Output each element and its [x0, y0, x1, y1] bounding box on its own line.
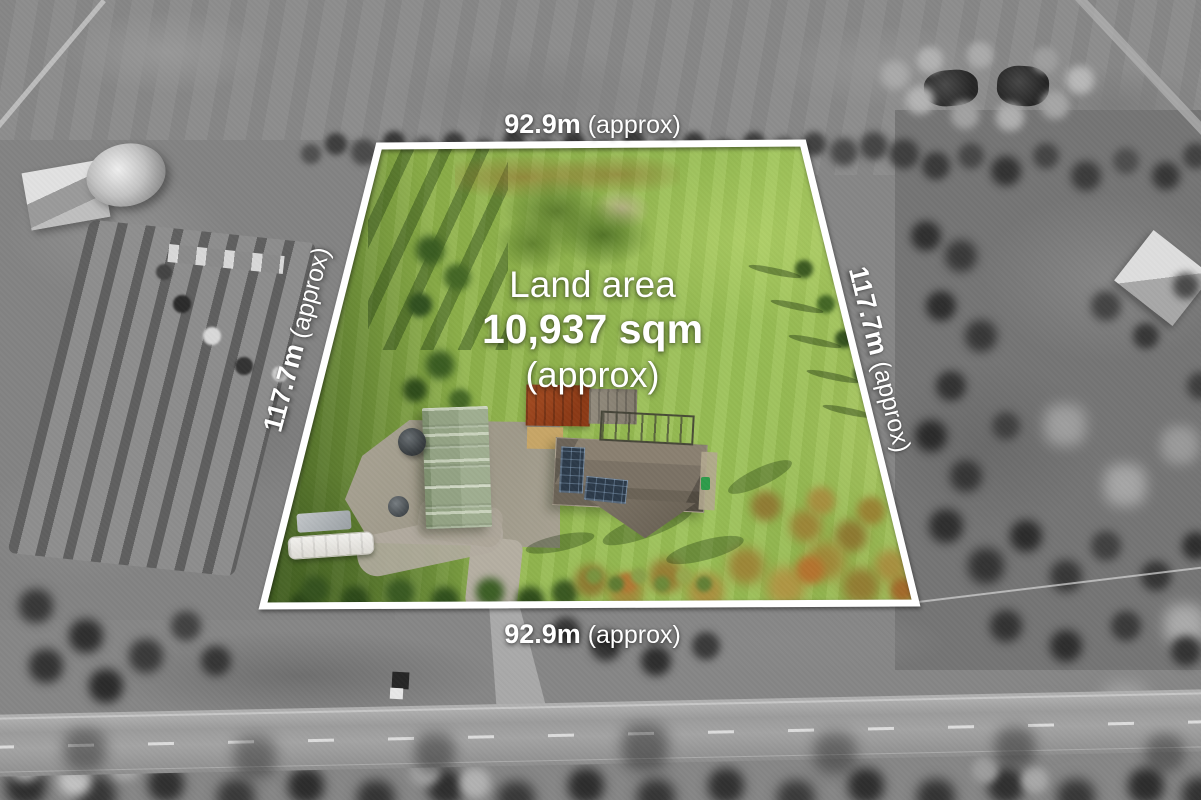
land-area-value: 10,937 sqm [0, 306, 1193, 353]
dimension-value: 92.9m [504, 619, 581, 649]
land-area-label: Land area 10,937 sqm (approx) [0, 264, 1193, 397]
dimension-qualifier: (approx) [588, 621, 681, 649]
dimension-qualifier: (approx) [588, 111, 681, 139]
dimension-label-bottom: 92.9m (approx) [0, 619, 1193, 650]
land-area-qualifier: (approx) [0, 353, 1193, 397]
annotation-layer: 92.9m (approx) 92.9m (approx) 117.7m (ap… [0, 0, 1201, 800]
dimension-value: 92.9m [504, 109, 581, 139]
aerial-photo: 92.9m (approx) 92.9m (approx) 117.7m (ap… [0, 0, 1201, 800]
dimension-label-top: 92.9m (approx) [0, 109, 1193, 140]
land-area-title: Land area [0, 264, 1193, 306]
